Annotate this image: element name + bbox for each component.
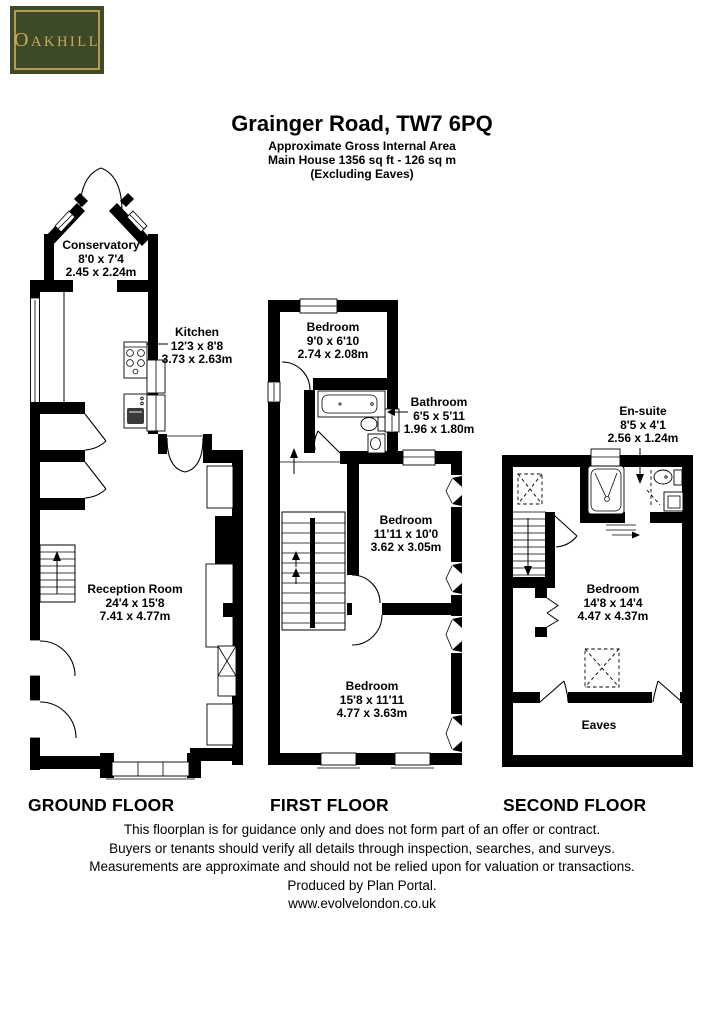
disclaimer-line-5: www.evolvelondon.co.uk	[0, 895, 724, 914]
hall-door-arc	[40, 702, 76, 738]
bedroom-door-arc	[352, 615, 382, 645]
room-label-reception: Reception Room 24'4 x 15'8 7.41 x 4.77m	[87, 583, 182, 624]
toilet-icon	[654, 470, 682, 485]
up-arrow-icon	[290, 448, 298, 458]
room-label-bathroom: Bathroom 6'5 x 5'11 1.96 x 1.80m	[404, 396, 475, 437]
room-label-ensuite: En-suite 8'5 x 4'1 2.56 x 1.24m	[608, 405, 679, 446]
oven-icon	[124, 394, 147, 428]
bedroom-door-arc	[282, 362, 310, 390]
step-threshold-icon	[606, 525, 640, 539]
front-door-arc	[40, 641, 75, 676]
toilet-icon	[361, 417, 385, 431]
bedroom-door-leaf	[555, 516, 577, 536]
shower-icon	[588, 466, 624, 514]
room-label-kitchen: Kitchen 12'3 x 8'8 3.73 x 2.63m	[162, 326, 233, 367]
floor-label-ground: GROUND FLOOR	[28, 795, 174, 816]
fireplace-icon	[218, 646, 236, 696]
floorplan-page: OAKHILL Grainger Road, TW7 6PQ Approxima…	[0, 0, 724, 1024]
up-arrow-icon	[53, 551, 61, 561]
closet-door-arcs	[85, 414, 106, 498]
down-arrow-icon	[524, 566, 532, 576]
reception-door-arc	[185, 438, 203, 472]
french-doors-icon	[74, 168, 134, 212]
floor-label-second: SECOND FLOOR	[503, 795, 646, 816]
bathtub-icon	[318, 391, 385, 417]
disclaimer-line-4: Produced by Plan Portal.	[0, 877, 724, 896]
room-label-conservatory: Conservatory 8'0 x 7'4 2.45 x 2.24m	[62, 239, 139, 280]
room-label-bedroom-2: Bedroom 11'11 x 10'0 3.62 x 3.05m	[371, 514, 442, 555]
reception-door-arc	[167, 438, 185, 472]
kitchen-counter-icon	[147, 360, 165, 431]
room-label-bedroom-1: Bedroom 9'0 x 6'10 2.74 x 2.08m	[298, 321, 369, 362]
room-label-eaves: Eaves	[582, 719, 617, 733]
stove-icon	[124, 342, 147, 378]
room-label-bedroom-4: Bedroom 14'8 x 14'4 4.47 x 4.37m	[578, 583, 649, 624]
bedroom-door-arc	[352, 575, 380, 603]
disclaimer-line-1: This floorplan is for guidance only and …	[0, 821, 724, 840]
second-floor-stairs	[513, 512, 546, 576]
skylight-icon	[585, 649, 619, 687]
first-floor-stairs	[282, 512, 345, 630]
disclaimer: This floorplan is for guidance only and …	[0, 821, 724, 914]
floor-label-first: FIRST FLOOR	[270, 795, 389, 816]
disclaimer-line-2: Buyers or tenants should verify all deta…	[0, 840, 724, 859]
sink-icon	[664, 492, 683, 511]
room-label-bedroom-3: Bedroom 15'8 x 11'11 4.77 x 3.63m	[337, 680, 408, 721]
bay-window-icon	[100, 753, 201, 779]
bifold-door-icon	[547, 598, 558, 627]
ground-stairs	[40, 545, 75, 602]
sink-icon	[368, 434, 385, 453]
disclaimer-line-3: Measurements are approximate and should …	[0, 858, 724, 877]
